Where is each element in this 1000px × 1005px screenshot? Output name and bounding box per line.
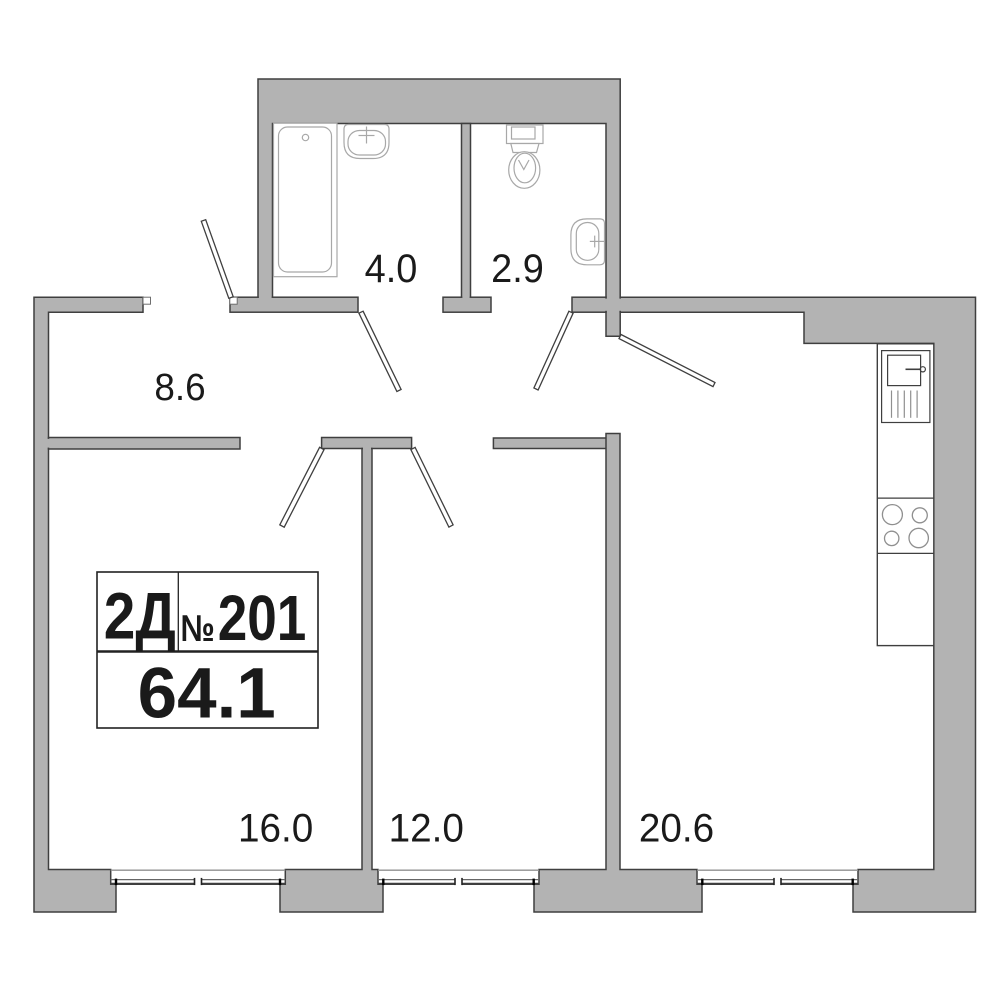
svg-text:2Д: 2Д <box>104 580 176 654</box>
svg-text:20.6: 20.6 <box>639 807 714 850</box>
svg-text:8.6: 8.6 <box>154 365 205 408</box>
svg-text:201: 201 <box>218 583 307 654</box>
svg-text:№: № <box>181 608 215 650</box>
svg-text:16.0: 16.0 <box>238 807 313 850</box>
svg-text:2.9: 2.9 <box>491 247 544 291</box>
svg-text:4.0: 4.0 <box>365 247 418 291</box>
svg-text:64.1: 64.1 <box>138 655 276 734</box>
svg-text:12.0: 12.0 <box>389 807 464 850</box>
